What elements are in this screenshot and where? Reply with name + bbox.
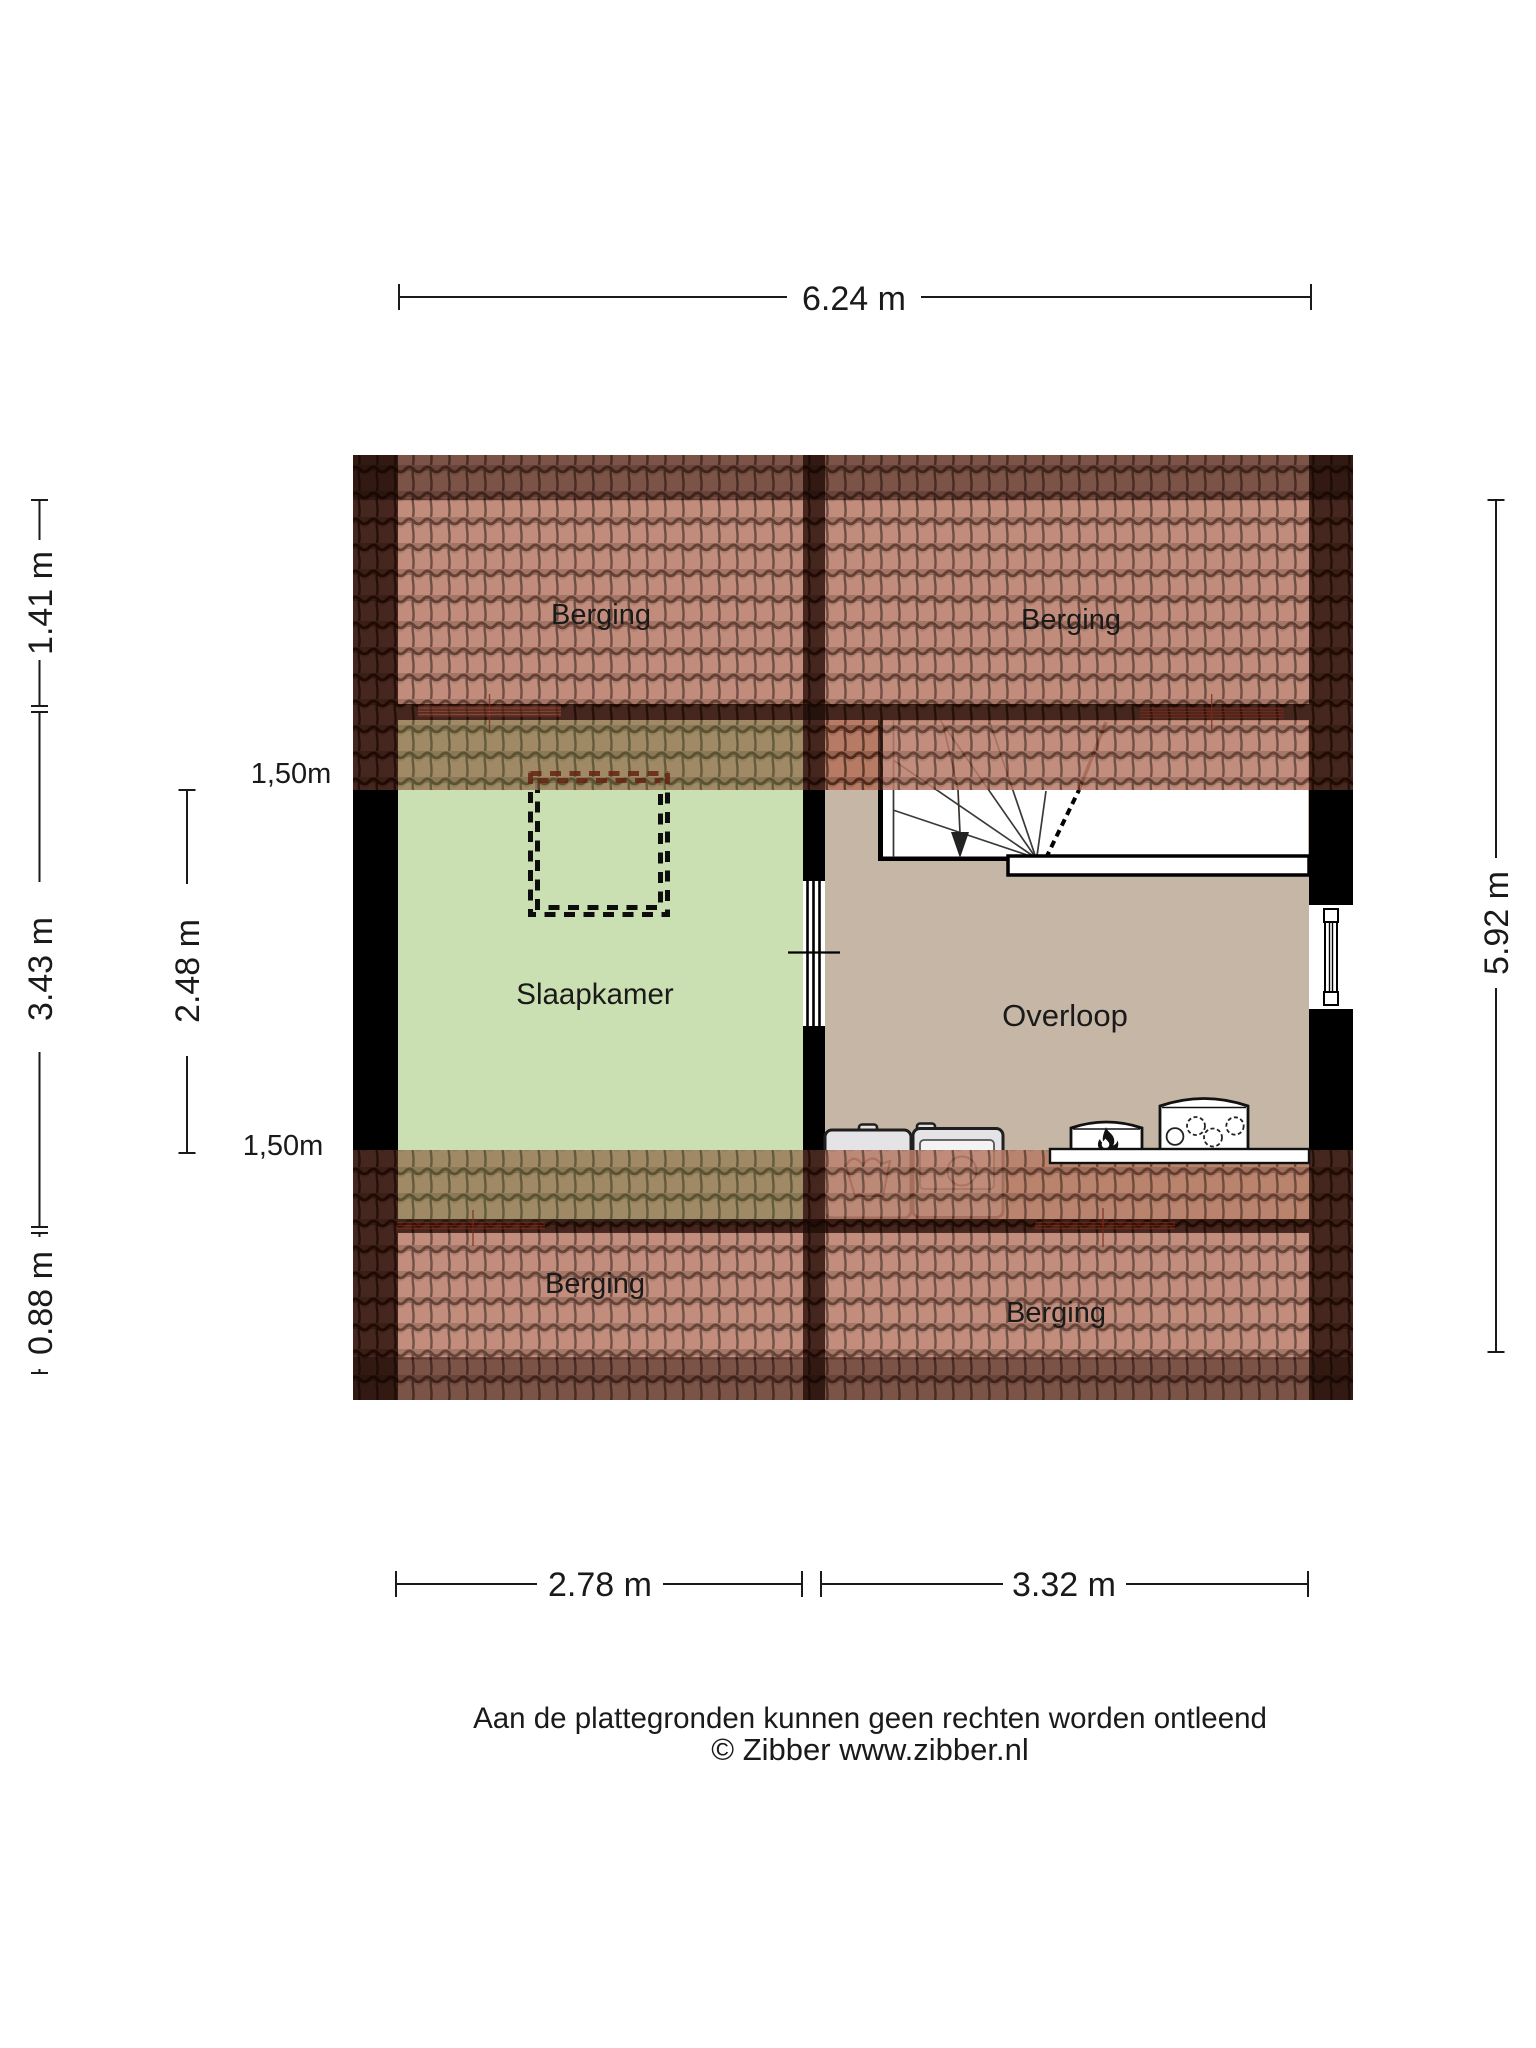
- svg-text:2.48 m: 2.48 m: [169, 919, 207, 1023]
- svg-text:1.41 m: 1.41 m: [22, 551, 60, 655]
- svg-text:Aan de plattegronden kunnen ge: Aan de plattegronden kunnen geen rechten…: [473, 1702, 1267, 1735]
- svg-text:5.92 m: 5.92 m: [1478, 871, 1516, 975]
- svg-text:Berging: Berging: [545, 1268, 645, 1300]
- svg-text:3.43 m: 3.43 m: [22, 917, 60, 1021]
- svg-text:Slaapkamer: Slaapkamer: [516, 978, 674, 1011]
- svg-text:Berging: Berging: [551, 599, 651, 631]
- svg-text:3.32 m: 3.32 m: [1012, 1566, 1116, 1604]
- svg-text:Overloop: Overloop: [1002, 998, 1128, 1033]
- svg-text:1,50m: 1,50m: [243, 1130, 324, 1162]
- svg-text:Berging: Berging: [1006, 1297, 1106, 1329]
- svg-text:0.88 m: 0.88 m: [22, 1251, 60, 1355]
- svg-text:2.78 m: 2.78 m: [548, 1566, 652, 1604]
- svg-text:Berging: Berging: [1021, 604, 1121, 636]
- svg-text:© Zibber www.zibber.nl: © Zibber www.zibber.nl: [711, 1732, 1028, 1767]
- svg-text:6.24 m: 6.24 m: [802, 280, 906, 318]
- svg-text:1,50m: 1,50m: [251, 758, 332, 790]
